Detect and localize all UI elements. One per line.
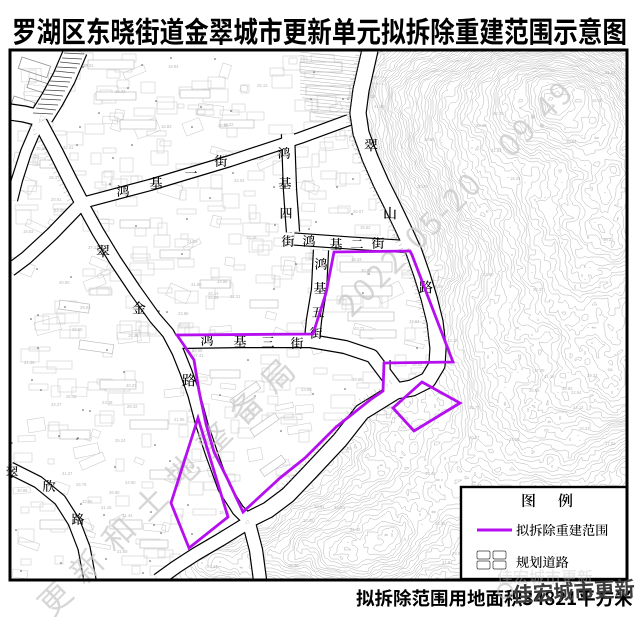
svg-text:23.98: 23.98 xyxy=(301,387,312,392)
svg-text:31.15: 31.15 xyxy=(101,505,112,510)
svg-text:16.31: 16.31 xyxy=(579,426,590,431)
svg-text:32.31: 32.31 xyxy=(230,294,241,299)
svg-text:22.60: 22.60 xyxy=(82,499,93,504)
svg-text:20.07: 20.07 xyxy=(353,209,364,214)
svg-text:22.04: 22.04 xyxy=(234,178,245,183)
svg-text:43.46: 43.46 xyxy=(425,471,436,476)
svg-text:28.42: 28.42 xyxy=(127,404,138,409)
svg-text:22.55: 22.55 xyxy=(72,327,83,332)
svg-text:21.39: 21.39 xyxy=(24,360,35,365)
svg-text:27.64: 27.64 xyxy=(409,319,420,324)
svg-text:39.59: 39.59 xyxy=(352,377,363,382)
svg-text:39.77: 39.77 xyxy=(469,405,480,410)
svg-text:33.27: 33.27 xyxy=(51,402,62,407)
svg-text:21.55: 21.55 xyxy=(174,417,185,422)
svg-text:31.44: 31.44 xyxy=(122,513,133,518)
svg-text:25.24: 25.24 xyxy=(115,438,126,443)
svg-text:32.41: 32.41 xyxy=(63,145,74,150)
svg-text:15.83: 15.83 xyxy=(161,124,172,129)
svg-text:26.80: 26.80 xyxy=(109,490,120,495)
svg-text:28.37: 28.37 xyxy=(533,287,544,292)
svg-text:18.43: 18.43 xyxy=(351,257,362,262)
svg-text:15.18: 15.18 xyxy=(246,235,257,240)
svg-text:22.54: 22.54 xyxy=(571,390,582,395)
svg-text:17.41: 17.41 xyxy=(193,353,204,358)
svg-text:25.12: 25.12 xyxy=(257,83,268,88)
svg-text:42.76: 42.76 xyxy=(493,111,504,116)
svg-text:20.91: 20.91 xyxy=(51,197,62,202)
svg-text:43.71: 43.71 xyxy=(354,326,365,331)
svg-text:22.86: 22.86 xyxy=(178,311,189,316)
svg-text:41.27: 41.27 xyxy=(62,471,73,476)
svg-text:40.37: 40.37 xyxy=(126,383,137,388)
svg-text:26.76: 26.76 xyxy=(76,482,87,487)
svg-text:23.18: 23.18 xyxy=(102,400,113,405)
svg-text:40.66: 40.66 xyxy=(17,488,28,493)
svg-text:26.16: 26.16 xyxy=(66,394,77,399)
svg-text:15.62: 15.62 xyxy=(360,225,371,230)
svg-text:20.90: 20.90 xyxy=(529,388,540,393)
svg-text:31.90: 31.90 xyxy=(191,282,202,287)
svg-text:40.90: 40.90 xyxy=(59,280,70,285)
svg-text:15.32: 15.32 xyxy=(115,89,126,94)
svg-text:44.14: 44.14 xyxy=(208,291,219,296)
svg-text:18.31: 18.31 xyxy=(83,63,94,68)
svg-text:21.19: 21.19 xyxy=(187,239,198,244)
svg-text:28.03: 28.03 xyxy=(80,305,91,310)
svg-text:19.94: 19.94 xyxy=(168,64,179,69)
svg-text:15.25: 15.25 xyxy=(128,333,139,338)
svg-text:34.98: 34.98 xyxy=(217,279,228,284)
svg-text:20.65: 20.65 xyxy=(218,123,229,128)
svg-text:16.24: 16.24 xyxy=(510,176,521,181)
svg-text:24.60: 24.60 xyxy=(125,480,136,485)
svg-text:19.53: 19.53 xyxy=(23,229,34,234)
